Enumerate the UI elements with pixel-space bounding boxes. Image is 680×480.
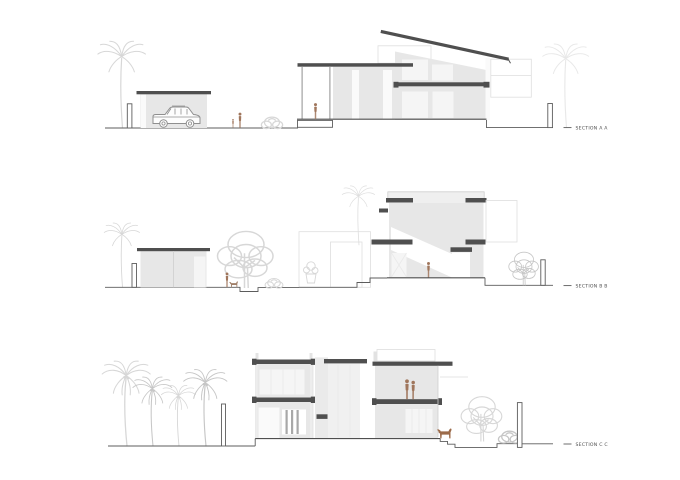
house-section-cc <box>252 350 468 439</box>
boundary-wall <box>517 403 522 448</box>
roof-slab-overhang <box>373 362 453 366</box>
window <box>433 92 454 119</box>
roof-slab <box>466 198 487 203</box>
porch-canopy-slab <box>298 63 414 66</box>
outbuilding <box>137 248 210 287</box>
porch-column <box>301 67 303 120</box>
slab-end-cap <box>311 397 316 403</box>
window <box>402 60 428 81</box>
palm-tree <box>133 377 172 446</box>
floor-slab <box>253 398 316 403</box>
potted-plant <box>304 262 319 283</box>
window-louver <box>286 410 288 434</box>
sections-drawing: SECTION A A <box>0 0 680 480</box>
slab-end-cap <box>484 82 490 88</box>
window <box>352 70 359 119</box>
section-bb-drawing: SECTION B B <box>104 186 607 292</box>
window <box>383 70 392 119</box>
corner-mullion <box>486 58 491 120</box>
rear-outline <box>377 350 435 362</box>
slab-end-cap <box>311 359 316 365</box>
section-cc-label: SECTION C C <box>576 442 608 448</box>
window <box>432 65 453 81</box>
upper-window <box>260 370 305 395</box>
palm-tree <box>161 386 195 446</box>
door-lintel <box>451 247 473 252</box>
palm-tree-behind <box>342 186 374 245</box>
house-section-bb <box>372 192 518 278</box>
stair-roof-slab <box>324 359 367 363</box>
garage-roof-slab <box>137 91 212 94</box>
palm-tree <box>102 361 150 446</box>
boundary-wall-stub <box>132 264 137 288</box>
window-louver <box>291 410 293 434</box>
lower-opening <box>259 408 280 439</box>
core-wall <box>315 357 328 438</box>
ground-line-right <box>487 120 554 128</box>
stair-tower <box>328 363 360 438</box>
garden-tree <box>461 397 502 442</box>
garden-tree <box>218 231 274 288</box>
porch-column <box>329 67 331 120</box>
porch-plinth <box>298 120 333 127</box>
palm-grove <box>102 361 227 446</box>
roof-slab <box>386 198 413 203</box>
window-louver <box>297 410 299 434</box>
background-house-outline <box>299 232 371 288</box>
rear-outline <box>486 201 517 243</box>
slab-end-cap <box>252 359 257 365</box>
garage <box>137 91 212 128</box>
outbuilding-roof-slab <box>137 248 210 251</box>
adult-figure <box>239 113 242 128</box>
parapet-stub <box>374 352 378 362</box>
boundary-wall-stub <box>127 104 132 128</box>
floor-slab <box>395 82 489 86</box>
landing-slab <box>317 414 328 419</box>
drawing-sheet: SECTION A A <box>0 0 680 480</box>
person-with-dog <box>226 272 229 287</box>
boundary-wall-stub <box>541 260 545 286</box>
section-bb-label: SECTION B B <box>576 283 608 289</box>
boundary-wall <box>222 404 226 446</box>
bush <box>265 278 283 288</box>
person-on-porch <box>314 103 317 119</box>
child-figure <box>232 119 234 128</box>
floor-slab <box>466 240 486 245</box>
ground-line-left <box>108 439 255 446</box>
palm-tree <box>184 370 227 446</box>
section-aa-label: SECTION A A <box>576 125 609 131</box>
rear-door <box>331 242 363 287</box>
section-aa-drawing: SECTION A A <box>98 31 608 131</box>
palm-tree <box>98 41 146 128</box>
window <box>402 92 428 119</box>
balcony-slab <box>372 240 413 245</box>
dog <box>437 428 452 438</box>
garage-wall-strip <box>141 95 146 129</box>
boundary-wall-stub <box>548 104 553 128</box>
door-opening <box>452 253 470 278</box>
rear-building <box>299 232 371 288</box>
slab-end-cap <box>252 397 257 403</box>
dog <box>229 281 238 287</box>
outbuilding-door <box>194 257 206 288</box>
slab-end-cap <box>394 82 399 88</box>
slab-end-cap <box>372 398 377 405</box>
roof-slab <box>253 360 316 365</box>
bush <box>261 117 282 129</box>
shrub <box>509 252 539 285</box>
wall-ledge <box>379 209 388 213</box>
section-cc-drawing: SECTION C C <box>102 350 608 448</box>
floor-slab <box>373 399 441 404</box>
